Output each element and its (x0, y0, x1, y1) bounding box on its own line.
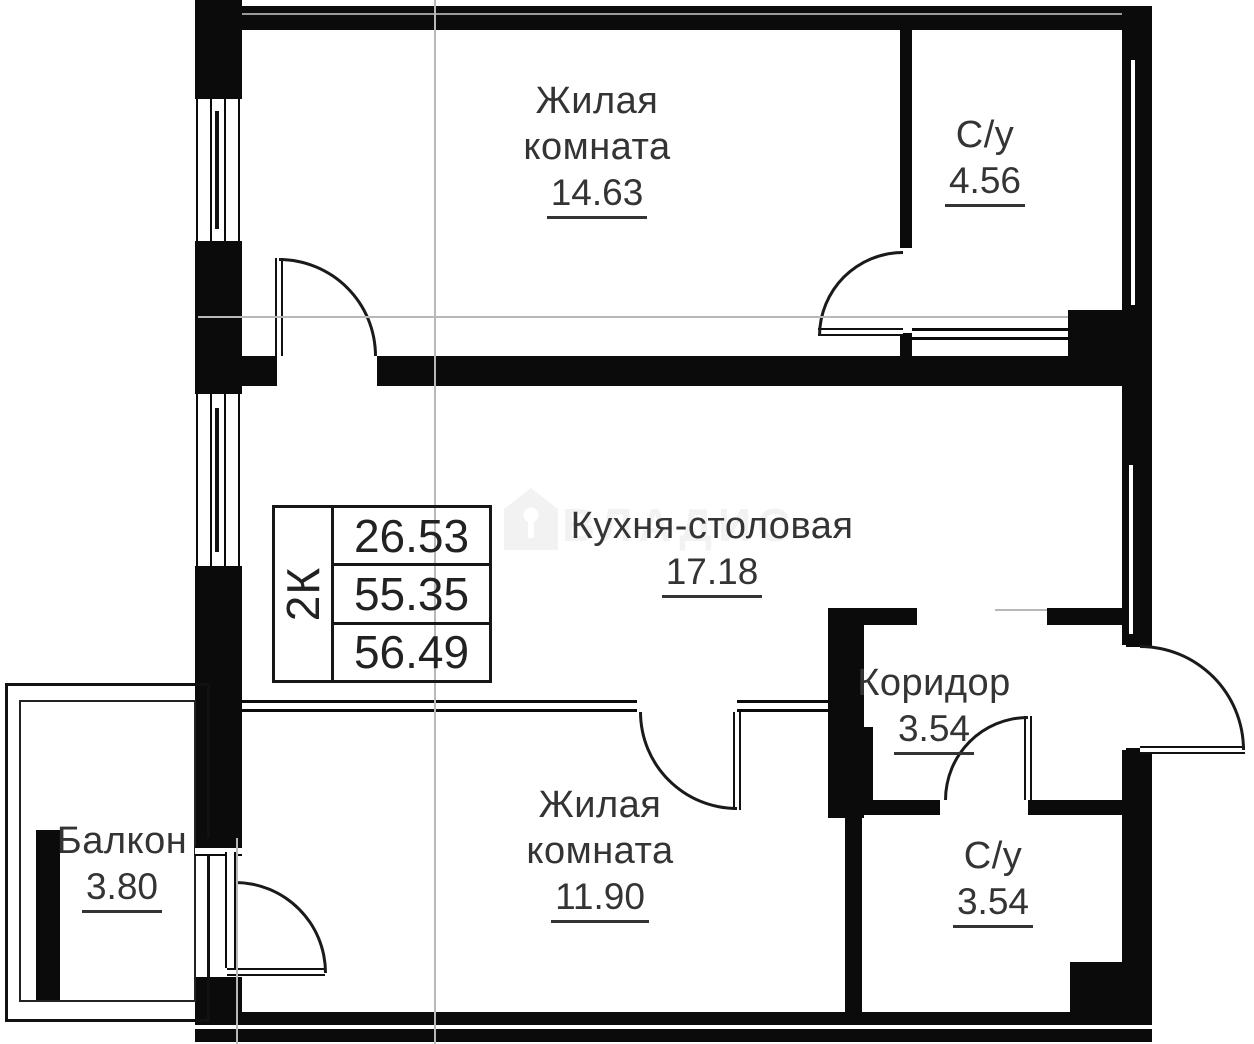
wall-corridor-top (1047, 608, 1122, 625)
room-label-balcony: Балкон 3.80 (32, 818, 212, 913)
window-frame-line (210, 99, 212, 241)
room-name: Жилая (437, 78, 757, 124)
apartment-type-label: 2К (276, 567, 330, 621)
room-label-living-top: Жилая комната 14.63 (437, 78, 757, 219)
apartment-type-cell: 2К (275, 508, 334, 680)
room-name: комната (437, 124, 757, 170)
window-frame-line (238, 99, 240, 241)
wall-bath-bottom-top (845, 800, 940, 815)
window-mullion (215, 408, 219, 552)
room-area: 3.80 (82, 866, 162, 913)
wall-bottom (195, 1029, 1152, 1042)
room-name: Жилая (440, 782, 760, 828)
window-mullion (215, 111, 219, 229)
wall-right-segment (1122, 383, 1152, 645)
room-name: С/у (923, 833, 1063, 879)
window-frame-line (210, 394, 212, 566)
window (195, 390, 242, 570)
balcony-door-swing (235, 881, 327, 973)
wall-kitchen-bottom (737, 700, 828, 712)
room-area: 3.54 (953, 881, 1033, 928)
wall-right-segment (1122, 6, 1152, 310)
room-area: 14.63 (547, 172, 648, 219)
room-label-kitchen: Кухня-столовая 17.18 (527, 503, 897, 598)
area-stamp-rows: 26.53 55.35 56.49 (334, 508, 489, 680)
door-swing (818, 251, 903, 336)
window-frame-line (196, 99, 198, 241)
wall-top-seam (215, 13, 1140, 15)
entrance-door-swing (1140, 645, 1245, 750)
wall-right-joint (1131, 60, 1135, 305)
room-label-living-bottom: Жилая комната 11.90 (440, 782, 760, 923)
room-area: 3.54 (894, 708, 974, 755)
room-name: комната (440, 828, 760, 874)
window (195, 95, 242, 245)
wall-top (195, 6, 1152, 30)
axis-line-vertical (236, 838, 238, 1044)
room-label-corridor: Коридор 3.54 (844, 660, 1024, 755)
wall-left-segment (195, 0, 242, 96)
wall-bath-bottom-left (845, 815, 862, 1012)
room-area: 17.18 (662, 551, 763, 598)
total-area-value: 56.49 (334, 625, 489, 680)
wall-bath-top-bottom (912, 328, 1068, 340)
window-frame-line (224, 99, 226, 241)
window-frame-line (238, 394, 240, 566)
wall-right-joint (1129, 465, 1133, 640)
wall-right-segment (1122, 750, 1152, 962)
area-without-balcony-value: 55.35 (334, 566, 489, 624)
area-stamp: 2К 26.53 55.35 56.49 (272, 505, 492, 683)
threshold-line (995, 609, 1047, 611)
wall-bath-top-left (900, 30, 912, 248)
room-label-bath-bottom: С/у 3.54 (923, 833, 1063, 928)
room-area: 11.90 (551, 876, 649, 923)
room-name: Балкон (32, 818, 212, 864)
room-name: Коридор (844, 660, 1024, 706)
axis-line-horizontal (198, 316, 1068, 318)
room-name: Кухня-столовая (527, 503, 897, 549)
wall-kitchen-bottom (242, 700, 637, 712)
wall-bottom (195, 1012, 1152, 1025)
window-frame-line (224, 394, 226, 566)
door-swing (279, 258, 377, 356)
wall-mid-horizontal (242, 356, 277, 386)
room-area: 4.56 (945, 160, 1025, 207)
wall-bath-top-stub (900, 333, 912, 356)
wall-right-corner-block (1070, 962, 1152, 1014)
room-label-bath-top: С/у 4.56 (915, 112, 1055, 207)
wall-bath-bottom-top (1028, 800, 1122, 815)
floor-plan: ВЛАДИС Жилая комната 14.63 С/у 4.56 Кухн… (0, 0, 1254, 1044)
living-area-value: 26.53 (334, 508, 489, 566)
wall-mid-horizontal (377, 356, 1122, 386)
window-frame-line (196, 394, 198, 566)
room-name: С/у (915, 112, 1055, 158)
wall-corridor-top (828, 608, 917, 625)
